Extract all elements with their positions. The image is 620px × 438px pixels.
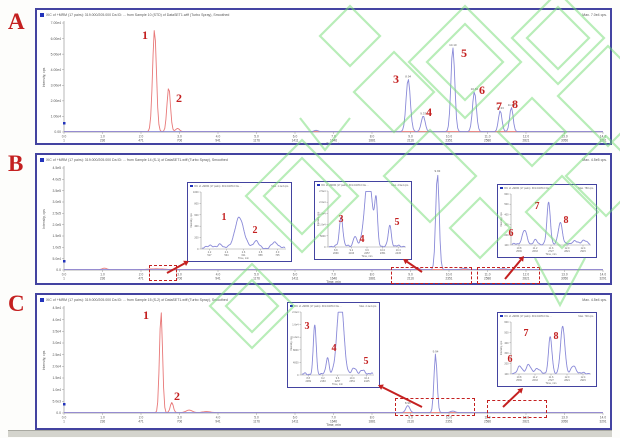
chromatogram-panel-C: XIC of +MRM (17 pairs): 319.000/205.000 … [35,293,612,430]
inset-y-tick-label: 0 [324,246,326,249]
y-tick-label: 1.5e4 [53,376,62,380]
y-tick-label: 2.0e4 [53,365,62,369]
inset-y-tick-label: 100 [504,244,509,247]
y-tick-label: 1.0e5 [53,246,62,250]
inset-x-scan-label: 2915 [580,250,586,253]
inset-plot: 600500400300200100Intensity, cps10.82539… [498,319,595,385]
inset-y-tick-label: 600 [504,193,509,196]
inset-header-text: XIC of +MRM (17 pairs): 319.0/205.0 Da .… [504,187,577,190]
x-tick-scan-label: 941 [215,419,221,423]
peak-number-7: 7 [535,202,540,212]
y-axis-title: Intensity, cps [42,209,46,229]
inset-plot: 600500400300200100Intensity, cps10.82539… [498,191,595,256]
panel-plot: 7.00e46.00e45.00e44.00e43.00e42.00e41.00… [37,10,610,143]
peak-number-1: 1 [142,29,148,41]
inset-y-tick-label: 2.0e4 [319,201,326,204]
inset-max-label: Max. 700 cps. [578,315,594,318]
x-tick-scan-label: 706 [177,419,183,423]
y-tick-label: 4.0e5 [53,178,62,182]
inset-y-tick-label: 200 [194,237,199,240]
window-icon [290,305,293,308]
inset-zoom-C-2: XIC of +MRM (17 pairs): 319.0/205.0 Da .… [497,312,597,387]
y-tick-label: 2.0e5 [53,223,62,227]
x-tick-scan-label: 1 [63,419,65,423]
x-tick-scan-label: 2586 [484,419,491,423]
x-tick-scan-label: 471 [138,138,144,142]
bottom-edge-strip [8,430,612,437]
inset-header-text: XIC of +MRM (17 pairs): 319.0/205.0 Da .… [294,305,358,308]
inset-y-tick-label: 0 [197,248,199,251]
inset-y-tick-label: 1.0e4 [319,224,326,227]
panel-label-C: C [8,292,25,315]
peak-number-3: 3 [339,215,344,225]
selection-marker [63,403,66,406]
inset-y-tick-label: 1.2e4 [292,336,299,339]
x-tick-scan-label: 2116 [407,419,414,423]
x-tick-scan-label: 2821 [522,419,529,423]
inset-x-scan-label: 2539 [516,379,522,382]
y-tick-label: 7.00e4 [51,21,61,25]
inset-x-scan-label: 517 [207,254,212,257]
x-tick-scan-label: 1411 [292,419,299,423]
inset-x-scan-label: 2163 [320,380,326,383]
x-axis-title: Time, min [326,280,341,283]
x-tick-scan-label: 706 [177,276,183,280]
inset-x-axis-title: Time, min [546,253,557,256]
inset-x-axis-title: Time, min [332,383,343,386]
inset-y-axis-title: Intensity, cps [500,212,503,227]
peak-number-8: 8 [512,98,518,110]
chromatogram-figure: XIC of +MRM (17 pairs): 319.000/205.000 … [0,0,620,438]
inset-x-axis-title: Time, min [238,257,249,260]
peak-number-1: 1 [143,309,149,321]
y-tick-label: 4.00e4 [51,68,61,72]
x-tick-scan-label: 706 [177,138,183,142]
peak-number-5: 5 [364,357,369,367]
inset-y-tick-label: 2.0e4 [292,311,299,314]
y-tick-label: 3.5e4 [53,330,62,334]
inset-y-tick-label: 1000 [193,191,199,194]
inset-y-tick-label: 8000 [293,349,299,352]
y-tick-label: 0.0 [56,411,61,415]
red-trace-standards-1-2 [64,31,603,132]
y-tick-label: 1.5e5 [53,234,62,238]
x-tick-scan-label: 3056 [561,138,568,142]
y-tick-label: 1.00e4 [51,115,61,119]
zoom-region-box-1 [395,398,475,416]
x-tick-scan-label: 1881 [368,276,375,280]
x-tick-scan-label: 1 [63,276,65,280]
inset-trace [202,217,285,249]
inset-x-scan-label: 2445 [364,380,370,383]
panel-label-A: A [8,10,25,33]
inset-x-axis-title: Time, min [362,255,373,258]
x-tick-scan-label: 3291 [599,276,606,280]
inset-zoom-B-2: XIC of +MRM (17 pairs): 319.0/205.0 Da .… [314,181,412,260]
selection-marker [63,260,66,263]
window-icon [190,185,193,188]
inset-x-scan-label: 658 [258,254,263,257]
inset-y-tick-label: 400 [194,225,199,228]
inset-trace [512,202,590,245]
inset-y-axis-title: Intensity, cps [500,340,503,355]
peak-number-8: 8 [554,332,559,342]
x-tick-scan-label: 3056 [561,276,568,280]
peak-number-7: 7 [496,100,502,112]
inset-x-scan-label: 2821 [564,250,570,253]
inset-y-axis-title: Intensity, cps [290,336,293,351]
y-tick-label: 2.5e5 [53,212,62,216]
zoom-region-box-2 [391,267,472,284]
x-tick-scan-label: 236 [100,138,106,142]
inset-y-tick-label: 300 [504,224,509,227]
inset-x-scan-label: 2163 [349,252,355,255]
inset-max-label: Max. 780 cps. [578,187,594,190]
inset-x-scan-label: 2539 [516,250,522,253]
x-tick-scan-label: 1411 [292,276,299,280]
chromatogram-panel-A: XIC of +MRM (17 pairs): 319.000/205.000 … [35,8,612,145]
x-tick-scan-label: 1881 [368,138,375,142]
x-tick-scan-label: 2821 [522,138,529,142]
inset-zoom-B-1: XIC of +MRM (17 pairs): 319.0/205.0 Da .… [187,182,292,262]
inset-y-tick-label: 100 [504,373,509,376]
x-tick-scan-label: 1411 [292,138,299,142]
peak-number-5: 5 [461,47,467,59]
x-tick-scan-label: 2116 [407,138,414,142]
x-tick-scan-label: 236 [100,276,106,280]
peak-number-5: 5 [395,218,400,228]
inset-x-scan-label: 2915 [580,379,586,382]
x-tick-scan-label: 2351 [445,419,452,423]
y-tick-label: 5.00e4 [51,52,61,56]
x-tick-scan-label: 3291 [599,138,606,142]
x-tick-scan-label: 941 [215,138,221,142]
inset-y-tick-label: 1.5e4 [319,212,326,215]
peak-number-2: 2 [174,390,180,402]
inset-plot: 10008006004002000Intensity, cps2.25172.4… [188,189,290,260]
inset-header-text: XIC of +MRM (17 pairs): 319.0/205.0 Da .… [504,315,577,318]
inset-x-scan-label: 2633 [532,379,538,382]
y-tick-label: 4.0e4 [53,318,62,322]
inset-y-tick-label: 500 [504,331,509,334]
inset-x-scan-label: 2351 [380,252,386,255]
inset-x-scan-label: 2633 [532,250,538,253]
x-tick-scan-label: 1 [63,138,65,142]
x-tick-scan-label: 3056 [561,419,568,423]
window-icon [317,184,320,187]
zoom-region-box-2 [487,400,547,418]
peak-number-3: 3 [305,322,310,332]
chromatogram-panel-B: XIC of +MRM (17 pairs): 319.000/205.000 … [35,153,612,285]
blue-trace-standards-3-8 [64,48,603,132]
inset-y-tick-label: 600 [504,321,509,324]
peak-number-2: 2 [176,92,182,104]
y-tick-label: 2.5e4 [53,353,62,357]
x-axis-title: Time, min [326,423,341,427]
inset-y-tick-label: 0 [297,374,299,377]
inset-y-tick-label: 400 [504,342,509,345]
x-tick-scan-label: 471 [138,276,144,280]
x-tick-scan-label: 471 [138,419,144,423]
retention-time-label: 9.94 [433,349,439,353]
zoom-region-box-1 [149,265,177,281]
peak-number-7: 7 [524,329,529,339]
peak-number-4: 4 [332,344,337,354]
inset-zoom-C-1: XIC of +MRM (17 pairs): 319.0/205.0 Da .… [287,302,380,388]
inset-y-tick-label: 5000 [320,235,326,238]
y-tick-label: 0.00 [54,130,61,134]
inset-y-tick-label: 4000 [293,361,299,364]
inset-max-label: Max. 1.1e3 cps. [271,185,289,188]
x-tick-scan-label: 3291 [599,419,606,423]
window-icon [500,187,503,190]
inset-x-scan-label: 2821 [564,379,570,382]
peak-number-6: 6 [508,355,513,365]
y-tick-label: 4.5e5 [53,166,62,170]
inset-y-axis-title: Intensity, cps [317,211,320,226]
inset-header-text: XIC of +MRM (17 pairs): 319.0/205.0 Da .… [194,185,270,188]
x-tick-scan-label: 1176 [253,419,260,423]
x-tick-scan-label: 236 [100,419,106,423]
x-tick-scan-label: 941 [215,276,221,280]
inset-y-tick-label: 1.6e4 [292,324,299,327]
x-tick-scan-label: 1176 [253,276,260,280]
zoom-region-box-3 [477,267,540,284]
selection-marker [63,122,66,125]
y-tick-label: 6.00e4 [51,37,61,41]
inset-x-scan-label: 2069 [306,380,312,383]
peak-number-2: 2 [253,226,258,236]
inset-trace [302,312,373,375]
retention-time-label: 8.94 [405,75,411,79]
peak-number-6: 6 [509,229,514,239]
peak-number-1: 1 [222,213,227,223]
inset-y-tick-label: 500 [504,203,509,206]
inset-zoom-B-3: XIC of +MRM (17 pairs): 319.0/205.0 Da .… [497,184,597,258]
y-tick-label: 1.0e4 [53,388,62,392]
inset-header-text: XIC of +MRM (17 pairs): 319.0/205.0 Da .… [321,184,390,187]
panel-label-B: B [8,152,23,175]
y-tick-label: 2.00e4 [51,99,61,103]
inset-y-tick-label: 400 [504,213,509,216]
y-axis-title: Intensity, cps [42,350,46,370]
peak-number-4: 4 [426,106,432,118]
x-tick-scan-label: 2586 [484,138,491,142]
peak-number-4: 4 [360,235,365,245]
y-tick-label: 3.00e4 [51,83,61,87]
x-tick-scan-label: 1881 [368,419,375,423]
y-tick-label: 3.5e5 [53,189,62,193]
y-tick-label: 0.0 [56,268,61,272]
peak-number-3: 3 [393,73,399,85]
inset-y-axis-title: Intensity, cps [190,213,193,228]
inset-x-scan-label: 705 [275,254,280,257]
y-tick-label: 3.0e4 [53,341,62,345]
peak-number-8: 8 [564,216,569,226]
window-icon [500,315,503,318]
y-axis-title: Intensity, cps [42,67,46,87]
y-tick-label: 3.0e5 [53,200,62,204]
inset-y-tick-label: 600 [194,214,199,217]
retention-time-label: 10.66 [471,87,479,91]
inset-x-axis-title: Time, min [546,382,557,385]
inset-x-scan-label: 2445 [395,252,401,255]
peak-number-6: 6 [479,84,485,96]
inset-max-label: Max. 2.9e4 cps. [391,184,409,187]
y-tick-label: 4.5e4 [53,306,62,310]
inset-x-scan-label: 564 [224,254,229,257]
inset-x-scan-label: 2351 [349,380,355,383]
retention-time-label: 9.93 [435,169,441,173]
retention-time-label: 10.10 [449,43,457,47]
inset-max-label: Max. 2.1e4 cps. [359,305,377,308]
inset-x-scan-label: 2069 [333,252,339,255]
x-tick-scan-label: 2351 [445,138,452,142]
y-tick-label: 5.0e4 [53,257,62,261]
inset-y-tick-label: 2.5e4 [319,190,326,193]
x-axis-title: Time, min [326,142,341,143]
inset-y-tick-label: 800 [194,202,199,205]
y-tick-label: 5.0e3 [53,400,62,404]
x-tick-scan-label: 1176 [253,138,260,142]
